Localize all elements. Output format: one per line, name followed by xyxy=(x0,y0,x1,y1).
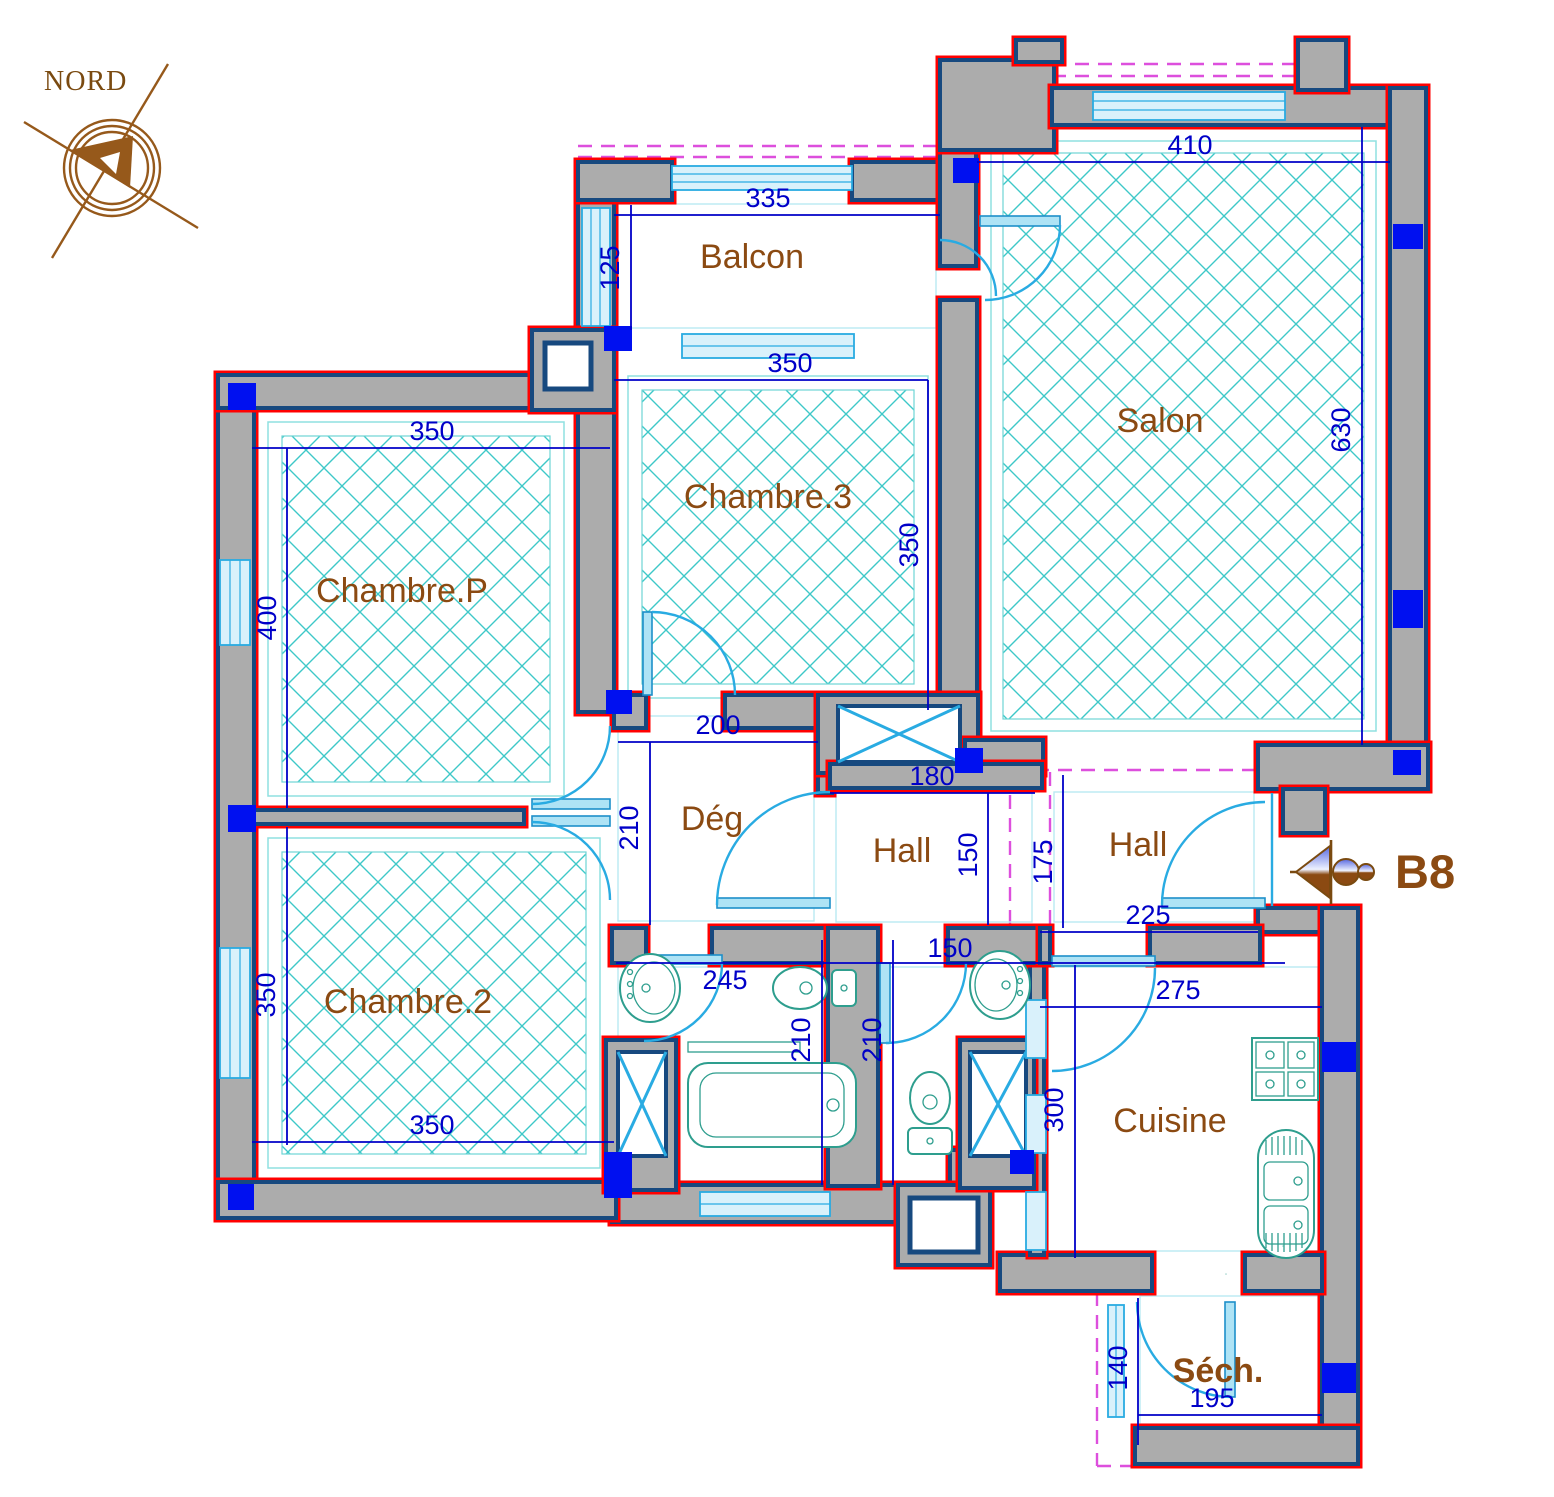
entry-circle-icon xyxy=(1358,864,1374,880)
column xyxy=(604,1152,632,1198)
compass-needle-icon xyxy=(70,136,133,188)
dim-chambreP-height: 400 xyxy=(252,595,282,640)
dim-hall1-height: 150 xyxy=(953,832,983,877)
dim-cuisine-width: 275 xyxy=(1155,975,1200,1005)
toilet xyxy=(908,1072,952,1154)
dim-hall2-height: 175 xyxy=(1028,839,1058,884)
column xyxy=(228,805,256,832)
entry-arrow-icon xyxy=(1296,846,1330,898)
chambre3-floor-hatch xyxy=(642,390,914,684)
north-compass: NORD xyxy=(24,64,198,258)
dim-sdb-width: 245 xyxy=(702,965,747,995)
kitchen-sink xyxy=(1258,1130,1314,1258)
dim-chambre3-height: 350 xyxy=(894,522,924,567)
column xyxy=(1393,590,1423,628)
room-label-sech: Séch. xyxy=(1173,1352,1264,1390)
column xyxy=(228,383,256,410)
washbasin xyxy=(620,954,680,1022)
column xyxy=(1322,1363,1356,1393)
dim-balcon-depth: 125 xyxy=(595,245,625,290)
dim-sech-height: 140 xyxy=(1103,1345,1133,1390)
room-label-salon: Salon xyxy=(1117,402,1204,440)
column xyxy=(228,1184,254,1210)
dim-cuisine-height: 300 xyxy=(1039,1087,1069,1132)
column xyxy=(1393,750,1421,775)
column xyxy=(953,158,979,183)
room-label-hall1: Hall xyxy=(873,832,932,870)
room-label-chambreP: Chambre.P xyxy=(316,572,488,610)
column xyxy=(955,748,983,773)
room-label-chambre2: Chambre.2 xyxy=(324,983,492,1021)
column xyxy=(1322,1042,1356,1072)
room-label-cuisine: Cuisine xyxy=(1113,1102,1226,1140)
north-label: NORD xyxy=(44,66,127,97)
dim-sdb-height: 210 xyxy=(786,1017,816,1062)
dim-salon-height: 630 xyxy=(1326,407,1356,452)
room-label-chambre3: Chambre.3 xyxy=(684,478,852,516)
unit-label: B8 xyxy=(1395,845,1455,898)
duct-niche xyxy=(910,1198,978,1252)
floor-plan-svg: 335 125 410 630 350 350 350 400 350 350 … xyxy=(0,0,1554,1497)
room-label-balcon: Balcon xyxy=(700,238,804,276)
washbasin xyxy=(970,951,1030,1019)
dim-hall1-width: 180 xyxy=(909,761,954,791)
window-salon-top xyxy=(1093,92,1285,120)
floor-plan-canvas: 335 125 410 630 350 350 350 400 350 350 … xyxy=(0,0,1554,1497)
dim-balcon-width: 335 xyxy=(745,183,790,213)
dim-wc-width: 150 xyxy=(927,933,972,963)
room-label-hall2: Hall xyxy=(1109,826,1168,864)
column xyxy=(1010,1150,1034,1174)
window-chambreP xyxy=(220,560,250,645)
toilet xyxy=(773,967,856,1009)
dim-chambre2-height: 350 xyxy=(251,972,281,1017)
entry-circle-icon xyxy=(1333,859,1359,885)
window-chambre2 xyxy=(220,948,250,1078)
dim-hall2-width: 225 xyxy=(1125,900,1170,930)
dim-chambre3-width: 350 xyxy=(767,348,812,378)
door-entry-b8 xyxy=(1162,802,1265,908)
dim-wc-height: 210 xyxy=(857,1017,887,1062)
dim-chambreP-width: 350 xyxy=(409,416,454,446)
dim-deg-width: 200 xyxy=(695,710,740,740)
room-label-deg: Dég xyxy=(681,800,743,838)
dim-chambre2-width: 350 xyxy=(409,1110,454,1140)
column xyxy=(604,326,632,351)
entry-marker: B8 xyxy=(1290,840,1455,904)
column xyxy=(1393,224,1423,249)
dim-salon-width: 410 xyxy=(1167,130,1212,160)
dim-deg-height: 210 xyxy=(614,805,644,850)
column xyxy=(606,690,632,714)
door-cuisine xyxy=(1052,956,1155,1071)
duct-niche xyxy=(545,343,591,389)
kitchen-stove xyxy=(1252,1038,1318,1100)
window-bath-bottom xyxy=(700,1192,830,1216)
